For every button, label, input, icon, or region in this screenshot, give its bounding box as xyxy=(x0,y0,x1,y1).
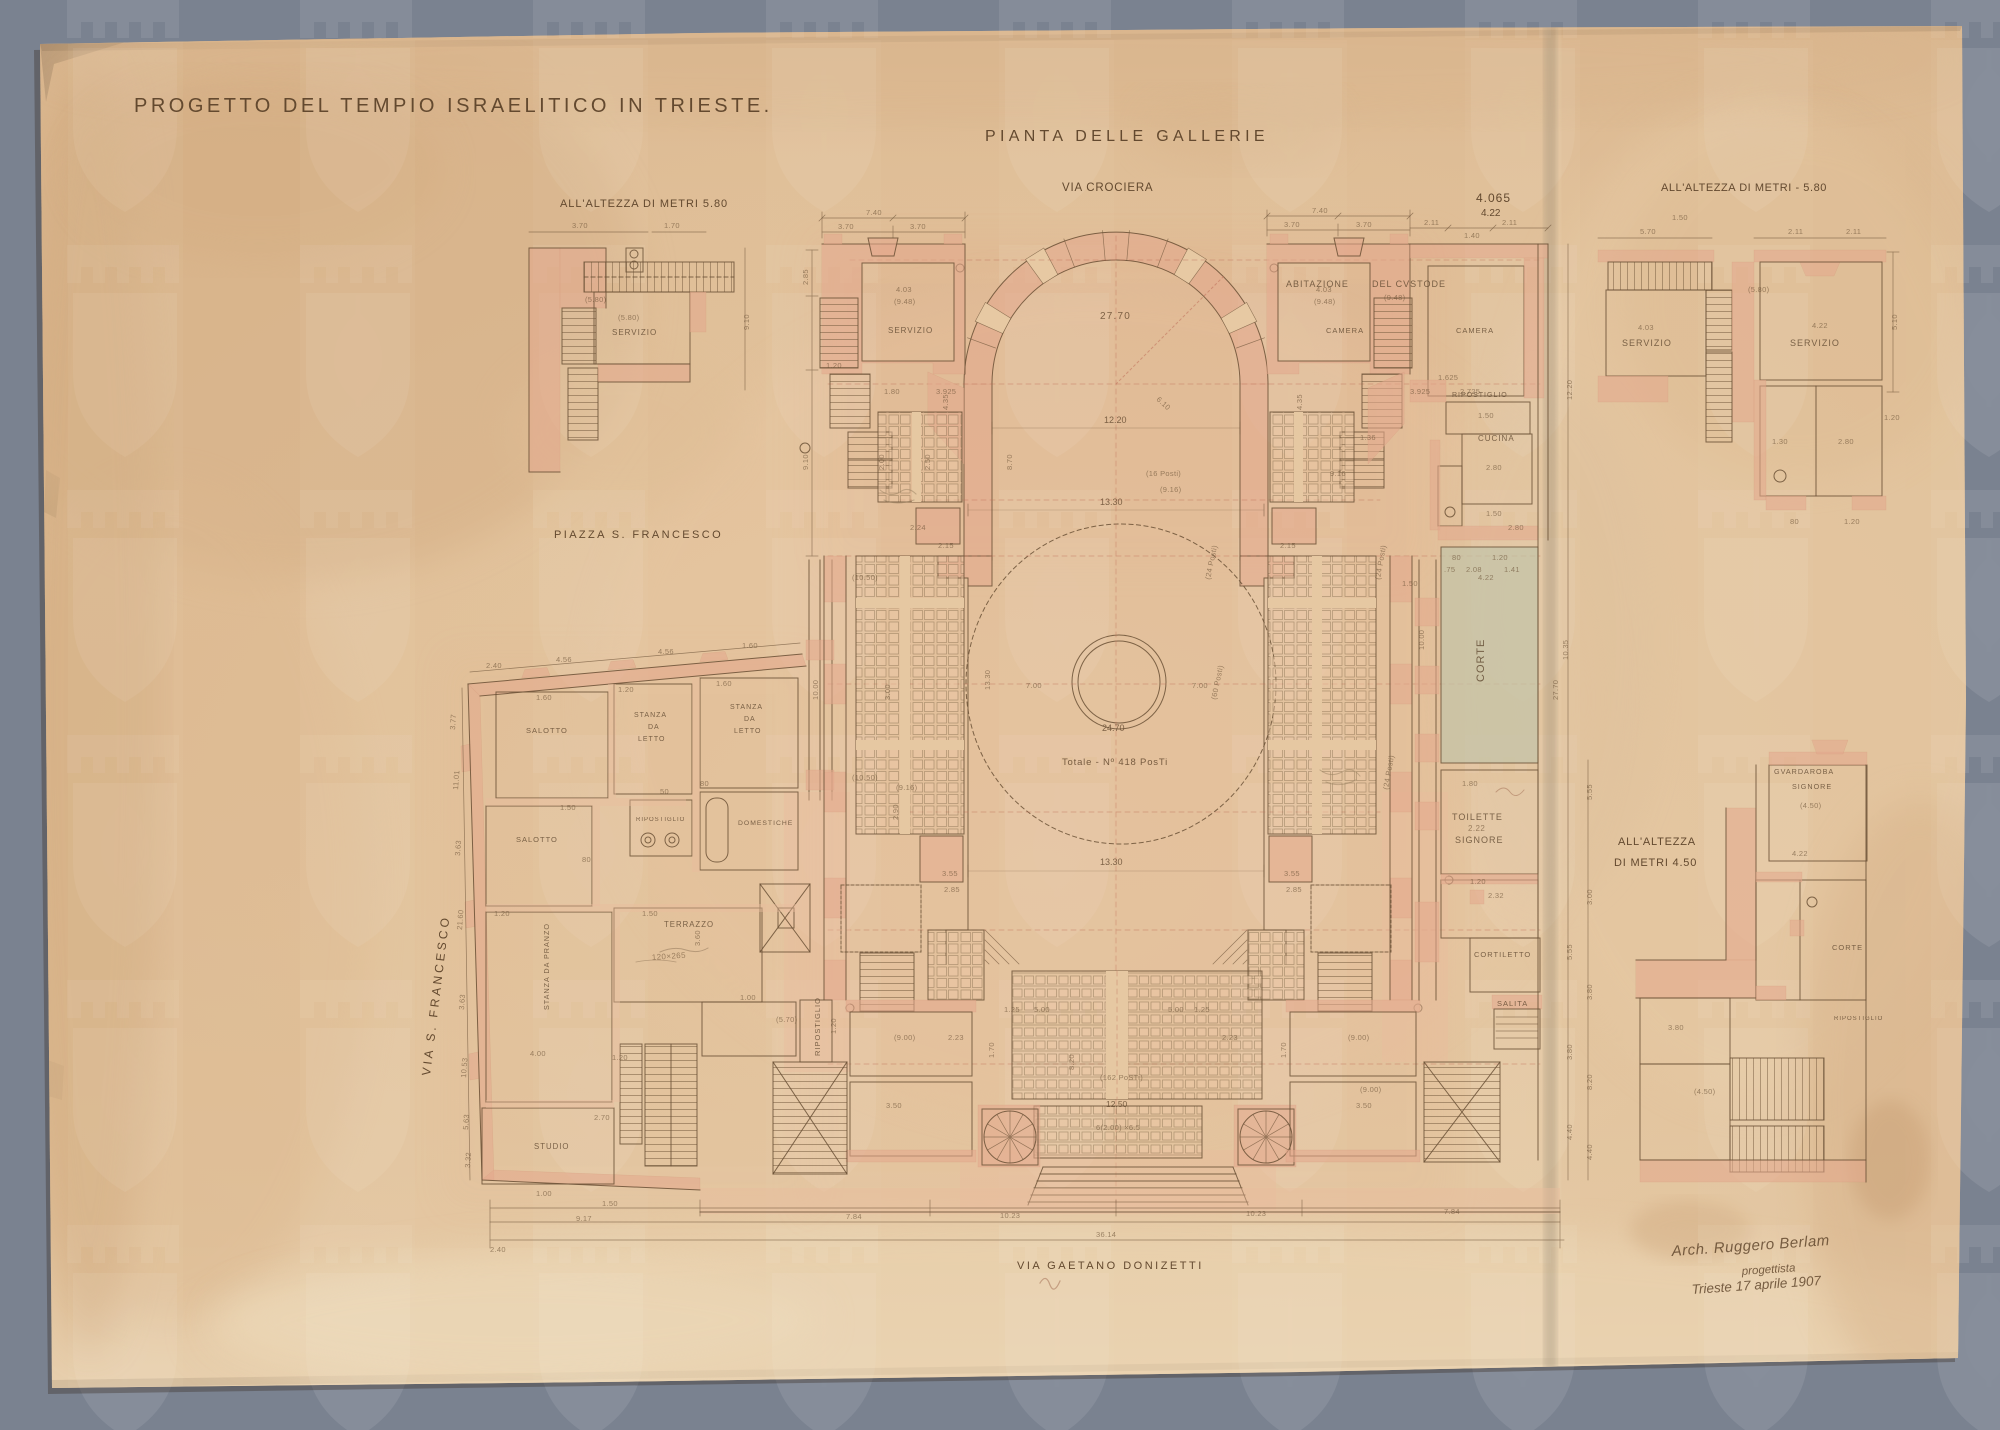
svg-text:ALL'ALTEZZA DI METRI 5.80: ALL'ALTEZZA DI METRI 5.80 xyxy=(560,198,728,210)
svg-text:CAMERA: CAMERA xyxy=(1456,326,1494,335)
svg-text:SALOTTO: SALOTTO xyxy=(516,835,558,844)
svg-text:4.22: 4.22 xyxy=(1478,573,1494,582)
svg-text:1.50: 1.50 xyxy=(1672,213,1688,222)
svg-text:7.84: 7.84 xyxy=(1444,1207,1460,1216)
svg-text:TOILETTE: TOILETTE xyxy=(1452,812,1503,822)
svg-text:2.32: 2.32 xyxy=(1488,891,1504,900)
svg-text:5.00: 5.00 xyxy=(1168,1005,1184,1014)
svg-text:7.40: 7.40 xyxy=(1312,206,1328,215)
svg-text:3.925: 3.925 xyxy=(936,387,956,396)
svg-text:3.70: 3.70 xyxy=(910,222,926,231)
svg-text:2.00: 2.00 xyxy=(877,454,886,470)
svg-text:DA: DA xyxy=(648,724,660,731)
svg-text:2.80: 2.80 xyxy=(1486,463,1502,472)
svg-text:1.70: 1.70 xyxy=(987,1042,996,1058)
svg-text:50: 50 xyxy=(660,787,669,796)
svg-text:1.25: 1.25 xyxy=(1194,1005,1210,1014)
svg-text:1.25: 1.25 xyxy=(1004,1005,1020,1014)
svg-text:4.03: 4.03 xyxy=(1638,323,1654,332)
svg-text:8.20: 8.20 xyxy=(1067,1054,1076,1070)
svg-text:2.85: 2.85 xyxy=(801,269,810,285)
svg-text:9.10: 9.10 xyxy=(742,314,751,330)
svg-text:2.23: 2.23 xyxy=(948,1033,964,1042)
svg-text:.75: .75 xyxy=(1444,565,1455,574)
svg-text:5.55: 5.55 xyxy=(1585,784,1594,800)
svg-text:TERRAZZO: TERRAZZO xyxy=(664,920,714,929)
svg-text:RIPOSTIGLIO: RIPOSTIGLIO xyxy=(636,817,685,823)
svg-text:(9.48): (9.48) xyxy=(1314,297,1336,306)
svg-text:(10.50): (10.50) xyxy=(852,573,878,582)
svg-text:VIA CROCIERA: VIA CROCIERA xyxy=(1062,182,1153,194)
svg-text:2.11: 2.11 xyxy=(1424,218,1439,227)
svg-text:1.20: 1.20 xyxy=(1884,413,1900,422)
svg-text:12.20: 12.20 xyxy=(1565,380,1574,400)
svg-text:CAMERA: CAMERA xyxy=(1326,326,1364,335)
svg-text:80: 80 xyxy=(1790,517,1799,526)
svg-text:LETTO: LETTO xyxy=(638,736,665,743)
svg-text:(4.50): (4.50) xyxy=(1800,801,1822,810)
svg-text:(9.00): (9.00) xyxy=(1360,1085,1382,1094)
svg-text:(5.80): (5.80) xyxy=(618,313,640,322)
svg-text:(162 PoSTi): (162 PoSTi) xyxy=(1100,1073,1143,1082)
svg-text:1.50: 1.50 xyxy=(1402,579,1418,588)
svg-text:4.56: 4.56 xyxy=(556,655,572,664)
svg-text:2.40: 2.40 xyxy=(486,661,502,670)
svg-text:3.80: 3.80 xyxy=(1585,984,1594,1000)
svg-text:12.20: 12.20 xyxy=(1104,415,1127,425)
svg-text:3.80: 3.80 xyxy=(1565,1044,1574,1060)
svg-text:(4.50): (4.50) xyxy=(1694,1087,1716,1096)
svg-text:4.065: 4.065 xyxy=(1476,191,1511,205)
svg-text:LETTO: LETTO xyxy=(734,728,761,735)
svg-text:4.35: 4.35 xyxy=(941,394,950,410)
svg-text:CUCINA: CUCINA xyxy=(1478,434,1515,443)
svg-text:21.60: 21.60 xyxy=(455,909,465,930)
svg-text:DEL CVSTODE: DEL CVSTODE xyxy=(1372,279,1446,289)
svg-text:STANZA: STANZA xyxy=(634,712,667,719)
svg-text:13.30: 13.30 xyxy=(983,670,992,690)
svg-text:2.11: 2.11 xyxy=(1788,227,1803,236)
svg-text:PIANTA DELLE GALLERIE: PIANTA DELLE GALLERIE xyxy=(985,128,1269,145)
svg-text:CORTE: CORTE xyxy=(1832,943,1863,952)
svg-text:PIAZZA S. FRANCESCO: PIAZZA S. FRANCESCO xyxy=(554,529,723,541)
svg-text:2.70: 2.70 xyxy=(594,1113,610,1122)
svg-text:1.80: 1.80 xyxy=(1462,779,1478,788)
svg-text:STANZA: STANZA xyxy=(730,704,763,711)
svg-text:2.85: 2.85 xyxy=(944,885,960,894)
svg-text:SERVIZIO: SERVIZIO xyxy=(1622,338,1672,348)
svg-text:SIGNORE: SIGNORE xyxy=(1455,835,1504,845)
svg-text:3.77: 3.77 xyxy=(448,714,458,730)
svg-text:9.10: 9.10 xyxy=(801,454,810,470)
svg-text:(5.80): (5.80) xyxy=(585,295,607,304)
svg-text:3.80: 3.80 xyxy=(1668,1023,1684,1032)
svg-text:3.55: 3.55 xyxy=(942,869,958,878)
svg-text:(5.80): (5.80) xyxy=(1748,285,1770,294)
svg-text:5.55: 5.55 xyxy=(1565,944,1574,960)
svg-text:4.22: 4.22 xyxy=(1792,849,1808,858)
svg-text:2.80: 2.80 xyxy=(1838,437,1854,446)
svg-text:80: 80 xyxy=(1452,553,1461,562)
svg-text:(16 Posti): (16 Posti) xyxy=(1146,469,1181,478)
svg-text:1.50: 1.50 xyxy=(642,909,658,918)
svg-text:1.60: 1.60 xyxy=(536,693,552,702)
svg-text:5.10: 5.10 xyxy=(1890,314,1899,330)
svg-text:10.00: 10.00 xyxy=(811,680,820,700)
svg-text:(9.00): (9.00) xyxy=(1348,1033,1370,1042)
svg-text:2.90: 2.90 xyxy=(891,804,900,820)
svg-text:1.80: 1.80 xyxy=(884,387,900,396)
svg-text:5.70: 5.70 xyxy=(1640,227,1656,236)
svg-text:3.32: 3.32 xyxy=(463,1152,473,1168)
svg-text:10.53: 10.53 xyxy=(459,1057,469,1078)
svg-text:3.60: 3.60 xyxy=(693,930,702,946)
svg-text:1.70: 1.70 xyxy=(1279,1042,1288,1058)
svg-text:CORTE: CORTE xyxy=(1475,639,1487,682)
svg-text:4.56: 4.56 xyxy=(658,647,674,656)
svg-text:27.70: 27.70 xyxy=(1100,311,1131,322)
svg-text:2.85: 2.85 xyxy=(1286,885,1302,894)
svg-text:2.11: 2.11 xyxy=(1502,218,1517,227)
svg-text:RIPOSTIGLIO: RIPOSTIGLIO xyxy=(1834,1016,1883,1022)
svg-text:36.14: 36.14 xyxy=(1096,1230,1116,1239)
svg-text:1.20: 1.20 xyxy=(826,361,842,370)
svg-text:11.01: 11.01 xyxy=(451,770,461,790)
svg-text:7.00: 7.00 xyxy=(1192,681,1208,690)
svg-text:9.16: 9.16 xyxy=(1330,469,1346,478)
svg-text:DI METRI 4.50: DI METRI 4.50 xyxy=(1614,857,1697,869)
svg-text:3.00: 3.00 xyxy=(883,684,892,700)
svg-text:1.50: 1.50 xyxy=(1478,411,1494,420)
svg-text:2.08: 2.08 xyxy=(1466,565,1482,574)
svg-text:3.70: 3.70 xyxy=(572,221,588,230)
svg-text:1.20: 1.20 xyxy=(1470,877,1486,886)
svg-text:1.20: 1.20 xyxy=(1844,517,1860,526)
svg-text:1.50: 1.50 xyxy=(560,803,576,812)
svg-text:80: 80 xyxy=(582,855,591,864)
svg-text:(9.16): (9.16) xyxy=(896,783,918,792)
svg-text:1.30: 1.30 xyxy=(1772,437,1788,446)
svg-text:(5.70): (5.70) xyxy=(776,1015,798,1024)
svg-text:SERVIZIO: SERVIZIO xyxy=(1790,338,1840,348)
svg-text:STANZA DA PRANZO: STANZA DA PRANZO xyxy=(542,923,551,1010)
svg-text:1.50: 1.50 xyxy=(602,1199,618,1208)
svg-text:RIPOSTIGLIO: RIPOSTIGLIO xyxy=(813,997,822,1056)
svg-text:13.30: 13.30 xyxy=(1100,497,1123,507)
svg-text:SERVIZIO: SERVIZIO xyxy=(612,328,657,337)
svg-text:(9.48): (9.48) xyxy=(1384,293,1406,302)
svg-text:4.40: 4.40 xyxy=(1565,1124,1574,1140)
svg-text:13.30: 13.30 xyxy=(1100,857,1123,867)
svg-text:8.70: 8.70 xyxy=(1005,454,1014,470)
svg-text:(10.50): (10.50) xyxy=(852,773,878,782)
svg-text:4.03: 4.03 xyxy=(1316,285,1332,294)
svg-text:ALL'ALTEZZA DI METRI - 5.80: ALL'ALTEZZA DI METRI - 5.80 xyxy=(1661,182,1827,194)
svg-text:2.80: 2.80 xyxy=(1508,523,1524,532)
svg-text:3.55: 3.55 xyxy=(1284,869,1300,878)
svg-text:SIGNORE: SIGNORE xyxy=(1792,782,1832,791)
svg-text:6(2.00) ×6.5: 6(2.00) ×6.5 xyxy=(1096,1123,1140,1132)
svg-text:7.00: 7.00 xyxy=(1026,681,1042,690)
svg-text:27.70: 27.70 xyxy=(1551,680,1560,700)
svg-text:2.11: 2.11 xyxy=(1846,227,1861,236)
svg-text:1.00: 1.00 xyxy=(536,1189,552,1198)
svg-text:4.22: 4.22 xyxy=(1481,208,1501,219)
svg-text:2.725: 2.725 xyxy=(1460,387,1480,396)
svg-text:7.40: 7.40 xyxy=(866,208,882,217)
svg-text:4.00: 4.00 xyxy=(530,1049,546,1058)
svg-text:1.625: 1.625 xyxy=(1438,373,1458,382)
svg-text:1.20: 1.20 xyxy=(829,1018,838,1034)
svg-text:3.63: 3.63 xyxy=(453,840,463,856)
svg-text:1.36: 1.36 xyxy=(1360,433,1376,442)
svg-text:3.925: 3.925 xyxy=(1410,387,1430,396)
svg-text:STUDIO: STUDIO xyxy=(534,1142,569,1151)
svg-text:3.00: 3.00 xyxy=(1585,889,1594,905)
svg-text:1.00: 1.00 xyxy=(740,993,756,1002)
svg-text:1.60: 1.60 xyxy=(742,641,758,650)
svg-text:DA: DA xyxy=(744,716,756,723)
svg-text:3.50: 3.50 xyxy=(886,1101,902,1110)
svg-text:12.50: 12.50 xyxy=(1106,1099,1128,1109)
svg-text:1.40: 1.40 xyxy=(1464,231,1480,240)
svg-text:PROGETTO DEL TEMPIO ISRAELI: PROGETTO DEL TEMPIO ISRAELITICO IN TRIES… xyxy=(134,95,773,117)
svg-text:SERVIZIO: SERVIZIO xyxy=(888,326,933,335)
svg-text:1.20: 1.20 xyxy=(1492,553,1508,562)
svg-text:1.20: 1.20 xyxy=(618,685,634,694)
svg-text:2.40: 2.40 xyxy=(490,1245,506,1254)
svg-text:(9.16): (9.16) xyxy=(1160,485,1182,494)
svg-text:1.20: 1.20 xyxy=(494,909,510,918)
svg-text:3.70: 3.70 xyxy=(1284,220,1300,229)
svg-text:8.20: 8.20 xyxy=(1585,1074,1594,1090)
svg-text:CORTILETTO: CORTILETTO xyxy=(1474,950,1531,959)
svg-text:DOMESTICHE: DOMESTICHE xyxy=(738,820,793,827)
svg-text:4.22: 4.22 xyxy=(1812,321,1828,330)
svg-text:2.23: 2.23 xyxy=(1222,1033,1238,1042)
svg-text:10.35: 10.35 xyxy=(1561,640,1570,660)
svg-text:10.00: 10.00 xyxy=(1417,630,1426,650)
svg-text:1.50: 1.50 xyxy=(1486,509,1502,518)
svg-text:ALL'ALTEZZA: ALL'ALTEZZA xyxy=(1618,836,1696,848)
svg-text:2.15: 2.15 xyxy=(1280,541,1296,550)
svg-text:VIA GAETANO DONIZETTI: VIA GAETANO DONIZETTI xyxy=(1017,1260,1204,1272)
svg-text:(9.48): (9.48) xyxy=(894,297,916,306)
svg-text:3.63: 3.63 xyxy=(457,994,467,1010)
svg-text:Totale - Nº 418 PosTi: Totale - Nº 418 PosTi xyxy=(1062,757,1168,768)
svg-text:5.00: 5.00 xyxy=(1034,1005,1050,1014)
svg-text:GVARDAROBA: GVARDAROBA xyxy=(1774,767,1834,776)
svg-text:3.50: 3.50 xyxy=(1356,1101,1372,1110)
svg-text:2.15: 2.15 xyxy=(938,541,954,550)
svg-text:5.63: 5.63 xyxy=(461,1114,471,1130)
svg-text:3.70: 3.70 xyxy=(1356,220,1372,229)
svg-text:24.70: 24.70 xyxy=(1102,723,1125,733)
svg-text:80: 80 xyxy=(700,779,709,788)
svg-text:2.24: 2.24 xyxy=(910,523,926,532)
svg-text:1.20: 1.20 xyxy=(612,1053,628,1062)
svg-text:10.23: 10.23 xyxy=(1000,1211,1020,1220)
svg-text:4.35: 4.35 xyxy=(1295,394,1304,410)
svg-text:1.41: 1.41 xyxy=(1504,565,1520,574)
svg-text:1.60: 1.60 xyxy=(716,679,732,688)
svg-text:4.03: 4.03 xyxy=(896,285,912,294)
svg-text:7.84: 7.84 xyxy=(846,1212,862,1221)
svg-text:1.70: 1.70 xyxy=(664,221,680,230)
svg-text:3.70: 3.70 xyxy=(838,222,854,231)
svg-text:SALOTTO: SALOTTO xyxy=(526,726,568,735)
svg-text:SALITA: SALITA xyxy=(1497,999,1528,1008)
svg-text:(9.00): (9.00) xyxy=(894,1033,916,1042)
svg-text:2.22: 2.22 xyxy=(1468,824,1485,833)
svg-text:2.50: 2.50 xyxy=(923,454,932,470)
svg-text:10.23: 10.23 xyxy=(1246,1209,1266,1218)
svg-text:4.40: 4.40 xyxy=(1585,1144,1594,1160)
